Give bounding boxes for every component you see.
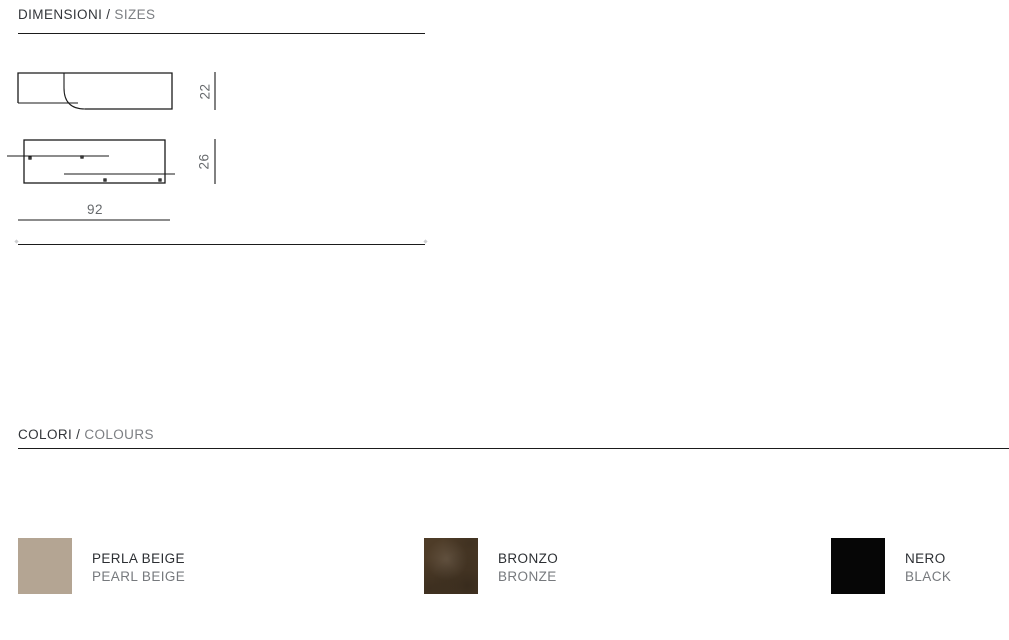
colors-section-title: COLORI/COLOURS	[18, 427, 154, 442]
profile-view-drawing	[18, 73, 172, 109]
swatch-labels: NERO BLACK	[905, 550, 951, 586]
width-label: 92	[60, 202, 130, 217]
front-height-label: 26	[197, 149, 212, 175]
profile-height-label: 22	[198, 79, 213, 105]
nero-swatch	[831, 538, 885, 594]
color-name-italian: NERO	[905, 550, 951, 568]
dimensions-bottom-rule	[18, 244, 425, 245]
perla-beige-swatch	[18, 538, 72, 594]
swatch-labels: BRONZO BRONZE	[498, 550, 558, 586]
color-name-english: BLACK	[905, 568, 951, 586]
color-name-english: BRONZE	[498, 568, 558, 586]
dimensions-title-english: SIZES	[114, 7, 155, 22]
dimensions-section-title: DIMENSIONI/SIZES	[18, 7, 155, 22]
rule-end-tick-right	[423, 239, 427, 243]
color-name-italian: BRONZO	[498, 550, 558, 568]
colors-title-english: COLOURS	[84, 427, 154, 442]
dimensions-title-italian: DIMENSIONI	[18, 7, 102, 22]
title-divider: /	[76, 427, 80, 442]
swatch-labels: PERLA BEIGE PEARL BEIGE	[92, 550, 185, 586]
bronzo-swatch	[424, 538, 478, 594]
dimensions-header-rule	[18, 33, 425, 34]
product-spec-page: DIMENSIONI/SIZES 22 26 92	[0, 0, 1009, 640]
front-view-drawing	[7, 140, 175, 183]
colors-header-rule	[18, 448, 1009, 449]
color-name-italian: PERLA BEIGE	[92, 550, 185, 568]
colors-title-italian: COLORI	[18, 427, 72, 442]
color-name-english: PEARL BEIGE	[92, 568, 185, 586]
title-divider: /	[106, 7, 110, 22]
